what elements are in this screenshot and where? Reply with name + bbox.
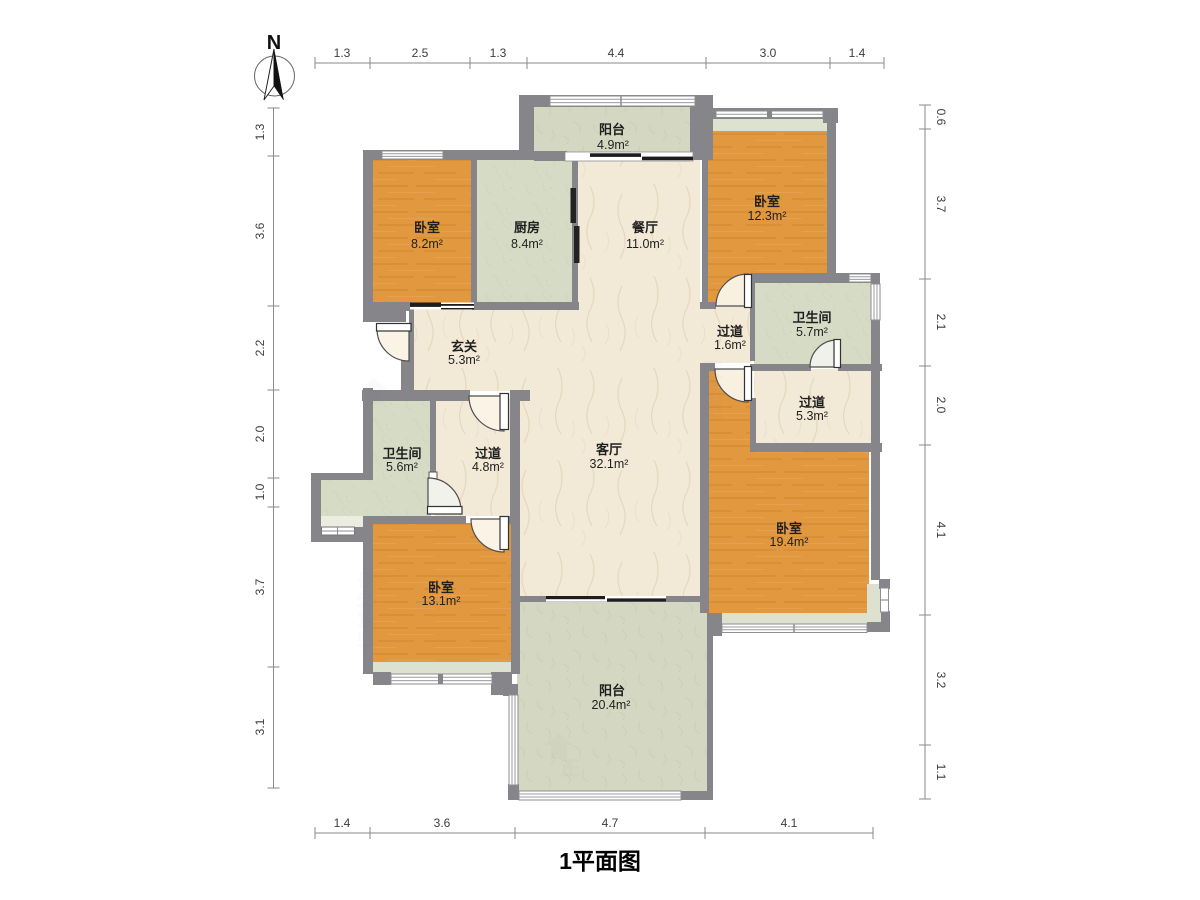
svg-text:32.1m²: 32.1m²: [590, 457, 629, 471]
svg-text:玄关: 玄关: [451, 339, 477, 354]
svg-text:3.7: 3.7: [934, 196, 948, 213]
svg-text:5.3m²: 5.3m²: [796, 409, 828, 423]
svg-text:阳台: 阳台: [599, 683, 625, 698]
svg-text:4.8m²: 4.8m²: [472, 460, 504, 474]
svg-text:4.1: 4.1: [934, 522, 948, 539]
svg-text:13.1m²: 13.1m²: [422, 594, 461, 608]
svg-text:4.7: 4.7: [602, 816, 619, 830]
svg-text:2.0: 2.0: [934, 397, 948, 414]
svg-text:2.1: 2.1: [934, 314, 948, 331]
svg-text:5.3m²: 5.3m²: [448, 353, 480, 367]
svg-text:1平面图: 1平面图: [559, 848, 641, 874]
svg-text:1.0: 1.0: [253, 483, 267, 500]
svg-text:19.4m²: 19.4m²: [770, 535, 809, 549]
svg-text:2.5: 2.5: [412, 46, 429, 60]
svg-text:绿城找房: 绿城找房: [356, 570, 380, 650]
svg-text:3.6: 3.6: [253, 222, 267, 239]
svg-text:1.1: 1.1: [934, 764, 948, 781]
svg-text:4.4: 4.4: [608, 46, 625, 60]
svg-text:卧室: 卧室: [414, 220, 440, 235]
svg-text:2.2: 2.2: [253, 339, 267, 356]
svg-text:3.2: 3.2: [934, 672, 948, 689]
svg-text:找房网: 找房网: [701, 360, 725, 420]
svg-text:客厅: 客厅: [596, 442, 622, 457]
svg-text:卫生间: 卫生间: [792, 310, 831, 325]
svg-text:厨房: 厨房: [514, 220, 540, 235]
svg-text:1.6m²: 1.6m²: [714, 338, 746, 352]
svg-text:1.3: 1.3: [334, 46, 351, 60]
svg-text:3.0: 3.0: [760, 46, 777, 60]
svg-text:过道: 过道: [717, 324, 743, 339]
svg-text:卧室: 卧室: [776, 521, 802, 536]
svg-text:1.4: 1.4: [334, 816, 351, 830]
svg-text:正: 正: [560, 758, 580, 780]
svg-text:1.3: 1.3: [490, 46, 507, 60]
svg-text:11.0m²: 11.0m²: [626, 237, 664, 251]
svg-text:过道: 过道: [475, 446, 501, 461]
svg-text:5.6m²: 5.6m²: [386, 460, 418, 474]
svg-text:1.3: 1.3: [253, 123, 267, 140]
svg-text:0.6: 0.6: [934, 109, 948, 126]
svg-text:3.7: 3.7: [253, 578, 267, 595]
svg-text:过道: 过道: [799, 395, 825, 410]
svg-text:12.3m²: 12.3m²: [748, 209, 787, 223]
svg-text:卧室: 卧室: [428, 580, 454, 595]
svg-text:20.4m²: 20.4m²: [592, 698, 631, 712]
svg-text:3.6: 3.6: [434, 816, 451, 830]
svg-text:2.0: 2.0: [253, 425, 267, 442]
svg-text:8.2m²: 8.2m²: [411, 237, 443, 251]
svg-text:卧室: 卧室: [754, 194, 780, 209]
svg-text:4.1: 4.1: [781, 816, 798, 830]
svg-text:8.4m²: 8.4m²: [511, 237, 543, 251]
svg-text:3.1: 3.1: [253, 718, 267, 735]
svg-text:1.4: 1.4: [849, 46, 866, 60]
svg-text:4.9m²: 4.9m²: [597, 138, 629, 152]
svg-text:餐厅: 餐厅: [631, 220, 658, 235]
svg-text:卫生间: 卫生间: [382, 446, 421, 461]
svg-text:5.7m²: 5.7m²: [796, 325, 828, 339]
svg-text:阳台: 阳台: [599, 122, 625, 137]
